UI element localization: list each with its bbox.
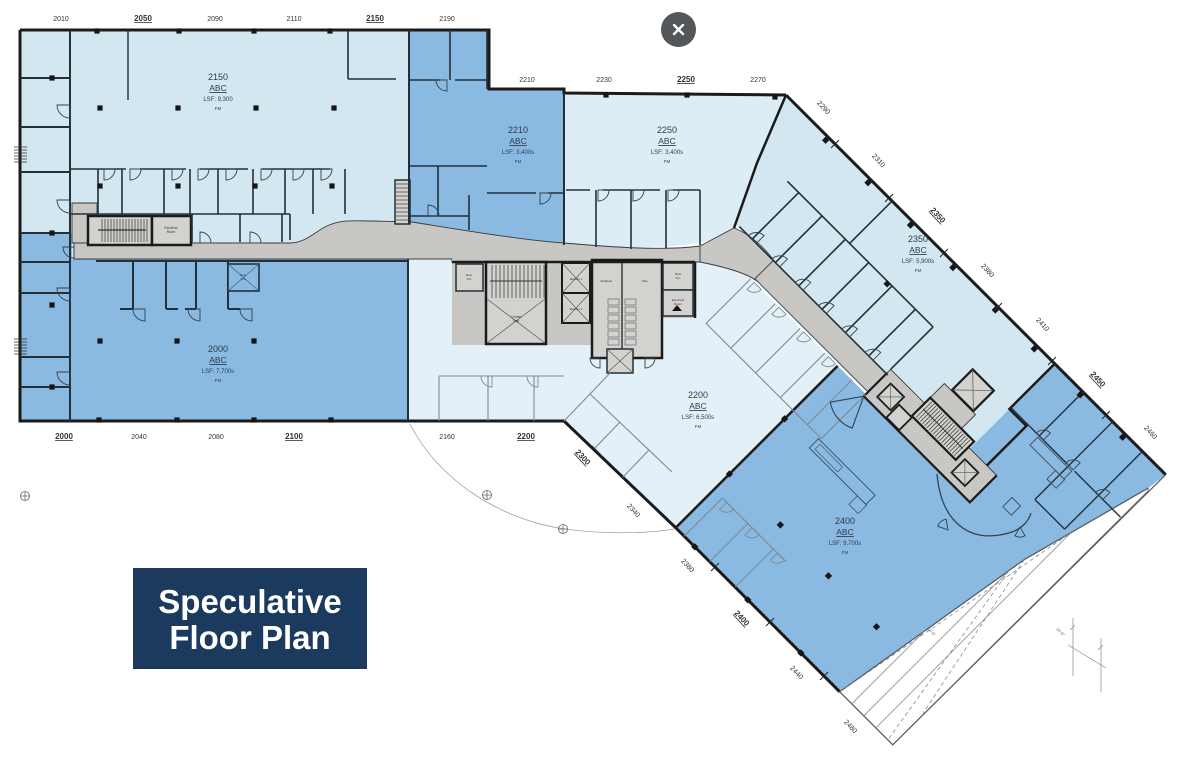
svg-text:Rm: Rm: [467, 277, 472, 281]
svg-text:ABC: ABC: [509, 136, 526, 146]
svg-text:2100: 2100: [285, 432, 303, 441]
svg-text:FM: FM: [842, 550, 849, 555]
svg-text:LSF: 9,700s: LSF: 9,700s: [829, 541, 861, 547]
svg-text:2160: 2160: [439, 434, 455, 441]
svg-text:Stair: Stair: [513, 319, 520, 323]
svg-text:Rm: Rm: [676, 276, 681, 280]
svg-text:ABC: ABC: [909, 245, 926, 255]
svg-text:ABC: ABC: [658, 136, 675, 146]
svg-text:FM: FM: [915, 268, 922, 273]
svg-text:2150: 2150: [208, 72, 228, 82]
svg-text:2250: 2250: [657, 125, 677, 135]
svg-text:2050: 2050: [134, 14, 152, 23]
svg-text:LSF: 7,700s: LSF: 7,700s: [202, 369, 234, 375]
svg-text:2080: 2080: [208, 434, 224, 441]
svg-text:LSF: 5,900s: LSF: 5,900s: [902, 259, 934, 265]
svg-text:ABC: ABC: [209, 83, 226, 93]
svg-text:2040: 2040: [131, 434, 147, 441]
svg-text:2230: 2230: [596, 77, 612, 84]
svg-text:2150: 2150: [366, 14, 384, 23]
svg-text:Elevator 1: Elevator 1: [570, 277, 583, 281]
svg-text:2270: 2270: [750, 77, 766, 84]
svg-text:FM: FM: [215, 106, 222, 111]
svg-text:2250: 2250: [677, 75, 695, 84]
svg-text:2000: 2000: [55, 432, 73, 441]
svg-text:2000: 2000: [208, 344, 228, 354]
svg-text:2210: 2210: [519, 77, 535, 84]
svg-text:2350: 2350: [908, 234, 928, 244]
svg-text:2190: 2190: [439, 16, 455, 23]
svg-text:ABC: ABC: [836, 527, 853, 537]
svg-text:2200: 2200: [517, 432, 535, 441]
svg-text:LSF: 9,300: LSF: 9,300: [203, 97, 233, 103]
svg-text:2090: 2090: [207, 16, 223, 23]
svg-text:Vestibule: Vestibule: [600, 279, 613, 283]
svg-text:LSF: 3,400s: LSF: 3,400s: [502, 150, 534, 156]
svg-text:2110: 2110: [286, 16, 301, 23]
svg-text:2200: 2200: [688, 390, 708, 400]
svg-text:FM: FM: [515, 159, 522, 164]
svg-text:Elevator 2: Elevator 2: [570, 307, 583, 311]
svg-text:FM: FM: [215, 378, 222, 383]
svg-text:Room: Room: [167, 230, 176, 234]
svg-text:Men: Men: [642, 279, 648, 283]
svg-text:2400: 2400: [835, 516, 855, 526]
svg-text:LSF: 6,500s: LSF: 6,500s: [682, 415, 714, 421]
svg-text:ABC: ABC: [209, 355, 226, 365]
svg-text:ABC: ABC: [689, 401, 706, 411]
svg-text:Floor Plan: Floor Plan: [169, 619, 330, 656]
svg-text:Rm: Rm: [241, 277, 246, 281]
svg-text:Speculative: Speculative: [158, 583, 341, 620]
svg-text:Room: Room: [674, 302, 683, 306]
svg-text:2010: 2010: [53, 16, 69, 23]
svg-text:2210: 2210: [508, 125, 528, 135]
svg-text:FM: FM: [664, 159, 671, 164]
svg-text:FM: FM: [695, 424, 702, 429]
svg-text:LSF: 3,400s: LSF: 3,400s: [651, 150, 683, 156]
